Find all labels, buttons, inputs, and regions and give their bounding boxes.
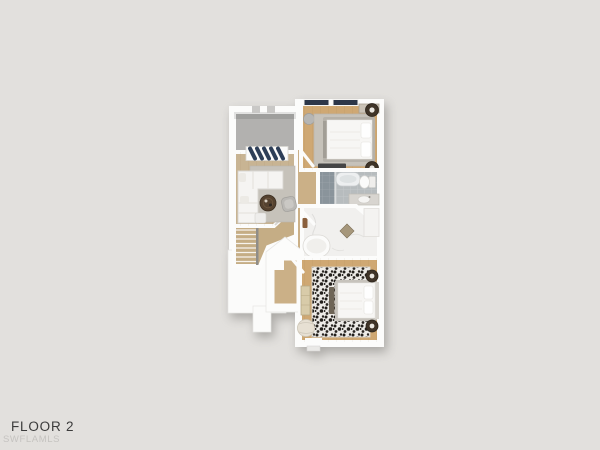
- floorplan-photo: FLOOR 2 SWFLAMLS: [0, 0, 600, 450]
- room-bedroom-bottom: [298, 258, 380, 351]
- floorplan: [228, 99, 384, 351]
- ottoman: [255, 213, 266, 223]
- lamp-icon: [370, 324, 375, 329]
- room-bathroom-marble: [302, 206, 379, 258]
- closet-wall: [273, 259, 284, 270]
- bath-cabinet: [364, 209, 379, 237]
- nightstand: [366, 320, 378, 332]
- vanity-sink: [349, 194, 379, 205]
- headboard: [375, 282, 379, 319]
- stair-rail: [256, 227, 259, 265]
- pillow: [361, 123, 371, 138]
- nightstand: [366, 104, 379, 117]
- freestanding-tub: [303, 235, 330, 257]
- room-bathroom: [318, 170, 379, 206]
- lamp-icon: [369, 107, 374, 112]
- pillow: [361, 142, 371, 157]
- round-chair: [304, 114, 315, 125]
- window-icon: [333, 100, 358, 106]
- faucet-icon: [369, 196, 371, 198]
- foot-bench: [329, 287, 335, 314]
- media-console: [246, 147, 288, 161]
- entry-door-gap: [305, 338, 322, 347]
- toilet: [360, 176, 376, 188]
- lamp-icon: [370, 274, 375, 279]
- bathtub-small: [336, 173, 360, 187]
- pillow: [364, 301, 373, 314]
- tv-console: [318, 164, 346, 169]
- pouf: [298, 320, 315, 337]
- bed: [323, 117, 375, 162]
- door-step: [307, 346, 320, 351]
- railing-gap-icon: [252, 106, 260, 113]
- room-living: [234, 147, 297, 227]
- coffee-table: [260, 195, 276, 211]
- nightstand: [366, 270, 378, 282]
- railing-gap-icon: [267, 106, 275, 113]
- towel-rack: [303, 218, 308, 228]
- dresser-bench: [301, 286, 310, 315]
- armchair: [281, 196, 298, 213]
- balcony-shading: [234, 112, 296, 119]
- pillow: [364, 286, 373, 299]
- floorplan-rendering: [0, 0, 600, 450]
- bed: [335, 280, 379, 321]
- window-icon: [304, 100, 329, 106]
